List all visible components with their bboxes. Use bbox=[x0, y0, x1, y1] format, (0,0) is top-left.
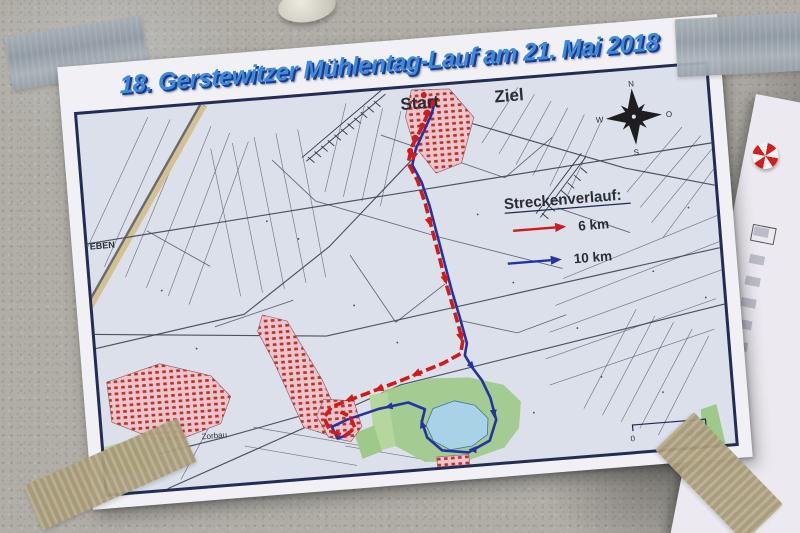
paper2-text-bar bbox=[753, 226, 769, 238]
compass-w: W bbox=[596, 115, 605, 125]
start-label: Start bbox=[400, 92, 441, 114]
tape-top-right bbox=[675, 13, 800, 78]
paper2-text-bar bbox=[740, 297, 756, 309]
red-pinwheel-ornament bbox=[750, 141, 780, 171]
legend-arrowhead-10km bbox=[550, 255, 562, 265]
legend-label-10km: 10 km bbox=[573, 248, 612, 266]
paper2-text-box bbox=[750, 224, 777, 245]
scale-zero: 0 bbox=[630, 434, 636, 443]
legend-label-6km: 6 km bbox=[578, 216, 610, 233]
photo-scene: 18. Gerstewitzer Mühlentag-Lauf am 21. M… bbox=[0, 0, 800, 533]
town-label-zorbau: Zorbau bbox=[201, 430, 227, 441]
compass-s: S bbox=[633, 148, 639, 157]
legend-arrow-10km bbox=[508, 260, 551, 263]
paper2-text-bar bbox=[744, 275, 760, 287]
town-label-eben: EBEN bbox=[89, 240, 115, 252]
paper2-text-bar bbox=[749, 254, 765, 266]
compass-rose: N O S W bbox=[593, 76, 675, 160]
wall-pebble bbox=[276, 0, 338, 26]
legend: Streckenverlauf: 6 km 10 km bbox=[502, 186, 635, 272]
ziel-label: Ziel bbox=[494, 85, 525, 106]
compass-o: O bbox=[666, 110, 673, 120]
legend-arrow-6km bbox=[513, 227, 555, 230]
compass-n: N bbox=[628, 79, 635, 88]
legend-heading: Streckenverlauf: bbox=[503, 187, 622, 213]
hamlet-south bbox=[437, 454, 470, 467]
legend-arrowhead-6km bbox=[555, 222, 567, 232]
tan-road bbox=[77, 106, 220, 312]
